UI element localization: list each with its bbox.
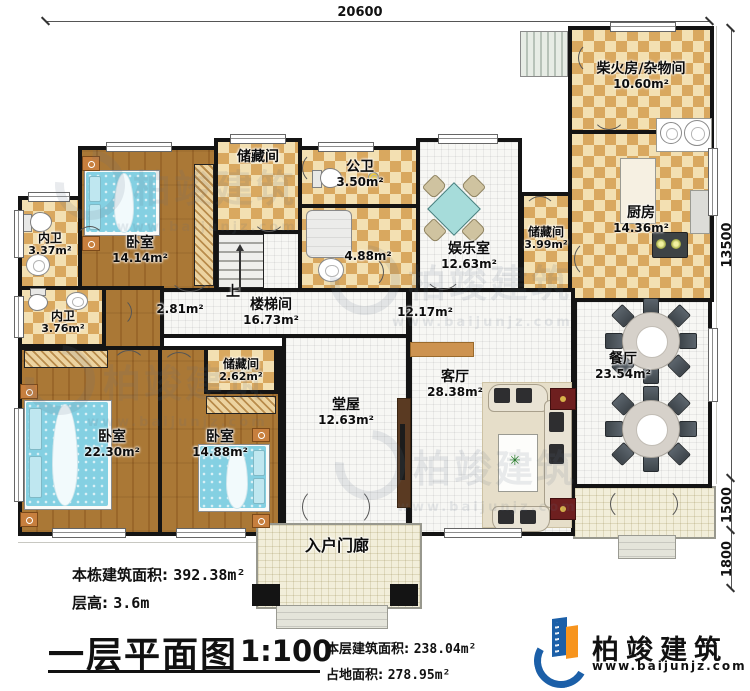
plant-icon: ✳: [509, 453, 521, 469]
building-area-value: 392.38m²: [173, 566, 245, 584]
room-label-firewood: 柴火房/杂物间10.60m²: [568, 62, 714, 91]
room-label-bedroom-topleft: 卧室14.14m²: [78, 236, 202, 265]
nightstand: [20, 384, 38, 399]
wardrobe: [24, 350, 108, 368]
nightstand: [20, 512, 38, 527]
door-arc: [104, 298, 132, 326]
room-label-bedroom-bottomleft: 卧室22.30m²: [60, 430, 164, 459]
window: [14, 408, 24, 502]
pillow: [89, 176, 101, 202]
floor-height-label: 层高:: [72, 594, 108, 612]
window: [438, 134, 498, 144]
building-area-row: 本栋建筑面积: 392.38m²: [72, 564, 245, 585]
tv: [400, 424, 405, 480]
room-label-bath: 4.88m²: [330, 250, 406, 263]
footprint-label: 占地面积:: [326, 668, 383, 683]
pillow: [29, 456, 42, 498]
dimension-right-upper: 13500: [720, 200, 735, 290]
door-arc: [112, 350, 146, 384]
dimension-right-lower: 1800: [720, 530, 735, 588]
nightstand: [82, 156, 100, 171]
floor-area-label: 本层建筑面积:: [326, 642, 409, 657]
side-table: [550, 498, 576, 520]
room-label-stairwell: 楼梯间16.73m²: [226, 298, 316, 327]
door-arc: [335, 488, 370, 526]
area-label-corridor: 12.17m²: [385, 306, 465, 319]
floor-area-row: 本层建筑面积: 238.04m²: [326, 638, 476, 657]
dimension-right-mid: 1500: [720, 480, 735, 530]
sofa-cushion: [549, 444, 564, 464]
room-label-storage-right: 储藏间3.99m²: [516, 226, 576, 252]
title-underline: [48, 670, 320, 673]
chair: [605, 333, 623, 349]
window: [28, 192, 70, 202]
porch-steps: [276, 605, 388, 629]
dimension-top-value: 20600: [330, 5, 390, 20]
game-table-set: [417, 172, 489, 244]
brand-logo-building-orange: [566, 625, 578, 659]
stove-burner: [671, 239, 681, 249]
window: [708, 328, 718, 402]
window: [230, 134, 286, 144]
room-label-kitchen: 厨房14.36m²: [568, 206, 714, 235]
pillow: [29, 408, 42, 450]
floor-plan-canvas: 20600 13500 1500 1800: [0, 0, 750, 691]
side-table: [550, 388, 576, 410]
room-label-dining: 餐厅23.54m²: [573, 352, 673, 381]
porch-pillar: [390, 584, 418, 606]
room-label-main-hall: 堂屋12.63m²: [282, 398, 410, 427]
door-arc: [643, 488, 678, 520]
room-label-porch: 入户门廊: [256, 537, 418, 555]
window: [106, 142, 172, 152]
door-arc: [252, 198, 286, 232]
brand-logo-building-blue: [552, 617, 567, 657]
nightstand: [252, 514, 270, 528]
eave-line: [716, 26, 717, 484]
sofa-cushion: [516, 388, 532, 403]
sofa-cushion: [549, 412, 564, 432]
dimension-line-top: [45, 21, 711, 22]
footprint-value: 278.95m²: [388, 668, 451, 683]
room-label-storage-small: 储藏间2.62m²: [204, 358, 278, 384]
basin: [684, 120, 710, 146]
dining-table: [622, 400, 680, 458]
window: [176, 528, 246, 538]
building-area-label: 本栋建筑面积:: [72, 566, 168, 584]
window: [444, 528, 522, 538]
chair: [679, 333, 697, 349]
stove-burner: [656, 239, 666, 249]
window: [610, 22, 676, 32]
pillow: [253, 478, 265, 504]
wood-beam: [410, 342, 474, 357]
room-label-entertainment: 娱乐室12.63m²: [416, 242, 522, 271]
sofa-cushion: [498, 510, 514, 524]
floor-height-row: 层高: 3.6m: [72, 592, 149, 613]
window: [318, 142, 374, 152]
room-label-living: 客厅28.38m²: [400, 370, 510, 399]
floor-area-value: 238.04m²: [414, 642, 477, 657]
room-label-bath-mid: 内卫3.76m²: [18, 310, 108, 336]
area-label-281: 2.81m²: [150, 303, 210, 316]
door-arc: [162, 352, 196, 386]
door-arc: [574, 240, 612, 278]
footprint-row: 占地面积: 278.95m²: [326, 664, 450, 683]
chair: [679, 421, 697, 437]
floor-height-value: 3.6m: [113, 594, 149, 612]
outdoor-platform: [520, 31, 568, 77]
stair-arrow-head: [236, 244, 244, 251]
plan-scale: 1:100: [240, 634, 332, 668]
wardrobe: [206, 396, 276, 414]
door-arc: [524, 196, 556, 228]
sofa-cushion: [520, 510, 536, 524]
window: [52, 528, 126, 538]
side-porch-steps: [618, 535, 676, 559]
door-arc: [302, 488, 337, 526]
staircase: [218, 234, 264, 288]
door-arc: [592, 96, 626, 130]
porch-pillar: [252, 584, 280, 606]
room-label-bedroom-bottommid: 卧室14.88m²: [158, 430, 282, 459]
side-porch: [573, 486, 716, 539]
chair: [605, 421, 623, 437]
sink: [66, 292, 88, 310]
room-label-public-bath: 公卫3.50m²: [310, 160, 410, 189]
brand-url: www.baijunjz.com: [592, 659, 747, 673]
room-label-storage-top: 储藏间: [214, 150, 302, 166]
basin: [660, 122, 682, 144]
room-label-bath-topleft: 内卫3.37m²: [18, 232, 82, 258]
door-arc: [610, 488, 645, 520]
dining-table-set: [612, 390, 688, 466]
